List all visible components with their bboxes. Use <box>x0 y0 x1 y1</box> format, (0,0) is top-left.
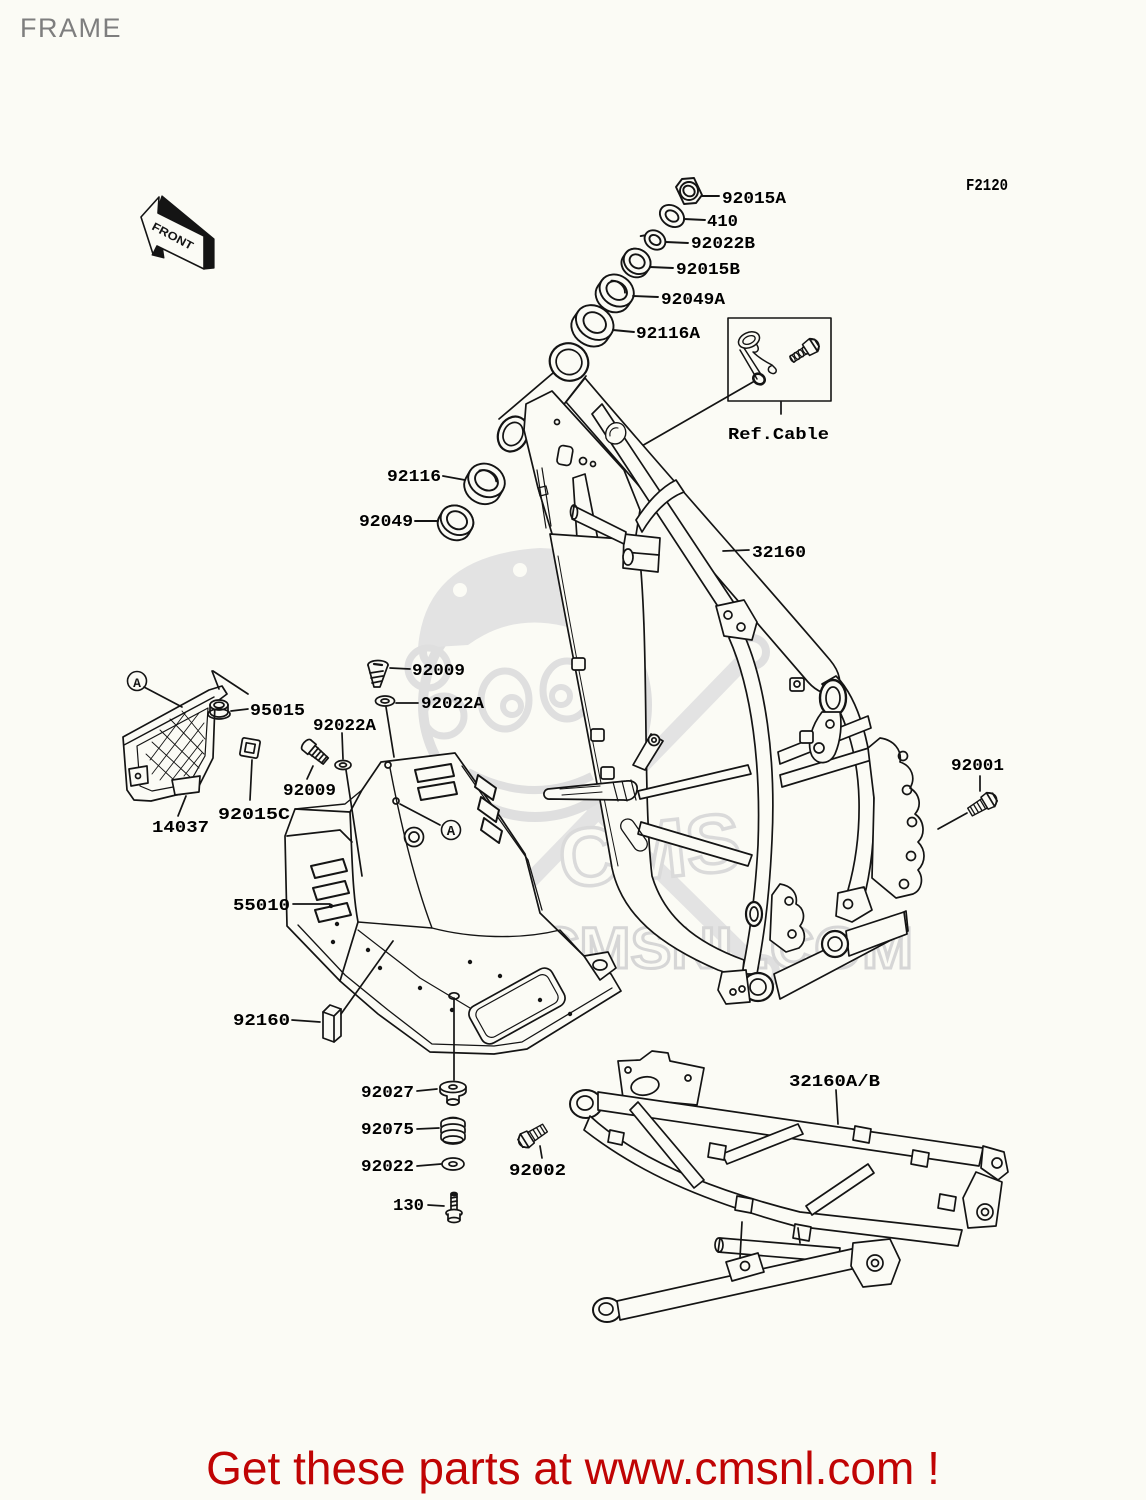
svg-text:32160A/B: 32160A/B <box>789 1073 880 1092</box>
svg-text:92022A: 92022A <box>313 717 377 736</box>
svg-text:55010: 55010 <box>233 897 290 916</box>
svg-text:F2120: F2120 <box>966 177 1008 196</box>
svg-text:92116A: 92116A <box>636 325 701 344</box>
svg-text:92002: 92002 <box>509 1162 566 1181</box>
svg-text:410: 410 <box>707 213 738 232</box>
svg-text:92015C: 92015C <box>218 806 290 825</box>
svg-text:92009: 92009 <box>283 782 336 801</box>
svg-text:92022B: 92022B <box>691 235 755 254</box>
svg-text:92116: 92116 <box>387 468 441 487</box>
svg-text:32160: 32160 <box>752 544 806 563</box>
svg-text:92015A: 92015A <box>722 190 787 209</box>
svg-text:Ref.Cable: Ref.Cable <box>728 426 829 445</box>
svg-text:95015: 95015 <box>250 702 305 721</box>
svg-text:92001: 92001 <box>951 757 1004 776</box>
svg-text:92075: 92075 <box>361 1121 414 1140</box>
svg-text:A: A <box>133 676 141 691</box>
svg-text:92022A: 92022A <box>421 695 485 714</box>
svg-text:92022: 92022 <box>361 1158 414 1177</box>
svg-text:A: A <box>447 824 456 840</box>
svg-text:92049: 92049 <box>359 513 413 532</box>
svg-text:92049A: 92049A <box>661 291 726 310</box>
svg-text:130: 130 <box>393 1197 424 1216</box>
svg-text:92009: 92009 <box>412 662 465 681</box>
svg-text:92027: 92027 <box>361 1084 414 1103</box>
svg-text:92160: 92160 <box>233 1012 290 1031</box>
svg-text:92015B: 92015B <box>676 261 740 280</box>
svg-text:14037: 14037 <box>152 819 209 838</box>
